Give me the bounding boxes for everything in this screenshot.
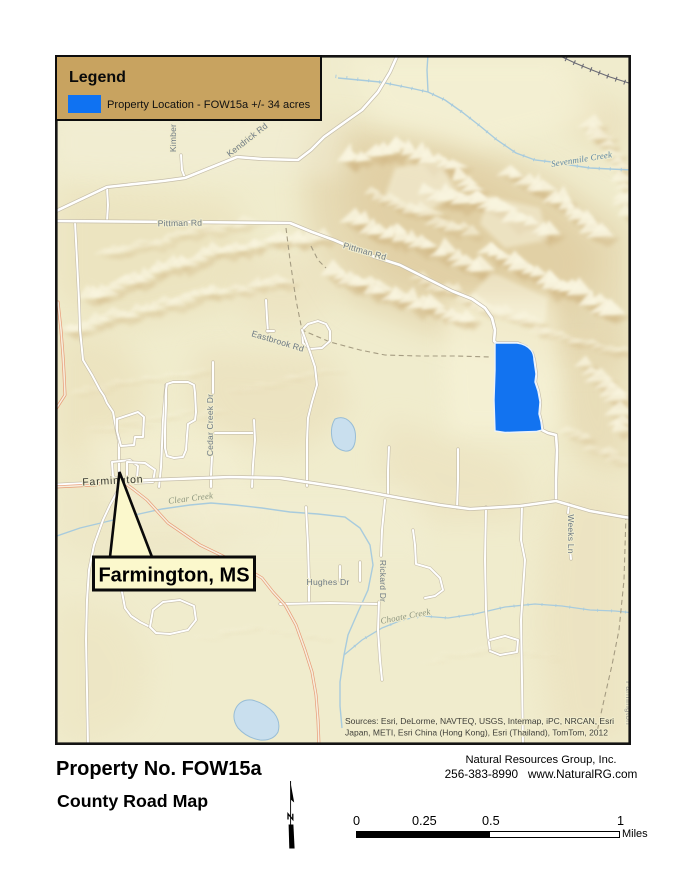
svg-text:Sources: Esri, DeLorme, NAVTEQ: Sources: Esri, DeLorme, NAVTEQ, USGS, In… — [345, 716, 614, 726]
svg-text:Weeks Ln: Weeks Ln — [566, 514, 576, 553]
svg-text:Hughes Dr: Hughes Dr — [307, 577, 350, 587]
svg-text:Farmington, MS: Farmington, MS — [98, 565, 249, 587]
svg-text:Japan, METI, Esri China (Hong: Japan, METI, Esri China (Hong Kong), Esr… — [345, 728, 608, 738]
svg-text:Cedar Creek Dr: Cedar Creek Dr — [205, 394, 215, 456]
svg-text:Rickard Dr: Rickard Dr — [378, 560, 388, 602]
svg-text:Pittman Rd: Pittman Rd — [158, 218, 203, 229]
svg-text:Kimber: Kimber — [168, 124, 178, 152]
